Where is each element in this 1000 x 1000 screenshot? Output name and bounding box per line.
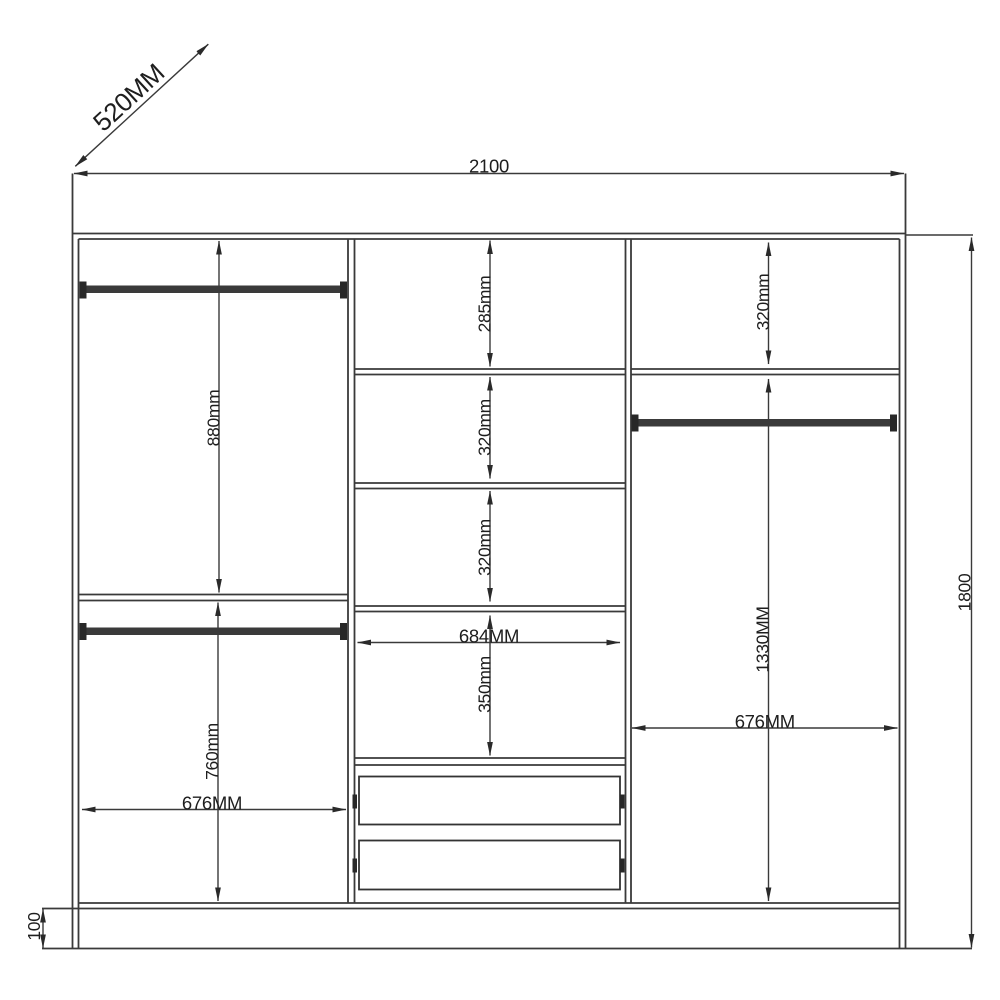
svg-text:320mm: 320mm bbox=[753, 274, 773, 331]
svg-text:285mm: 285mm bbox=[475, 276, 495, 333]
svg-text:1330MM: 1330MM bbox=[753, 606, 773, 672]
svg-text:100: 100 bbox=[24, 912, 44, 941]
svg-text:320mm: 320mm bbox=[475, 399, 495, 456]
svg-text:880mm: 880mm bbox=[204, 390, 224, 447]
svg-text:350mm: 350mm bbox=[475, 656, 495, 713]
svg-text:320mm: 320mm bbox=[475, 519, 495, 576]
svg-text:2100: 2100 bbox=[469, 156, 509, 177]
svg-text:676MM: 676MM bbox=[182, 793, 242, 814]
svg-text:520MM: 520MM bbox=[87, 58, 170, 138]
svg-text:684MM: 684MM bbox=[459, 626, 519, 647]
svg-text:760mm: 760mm bbox=[202, 723, 222, 780]
svg-text:1800: 1800 bbox=[955, 573, 975, 611]
svg-text:676MM: 676MM bbox=[735, 711, 795, 732]
